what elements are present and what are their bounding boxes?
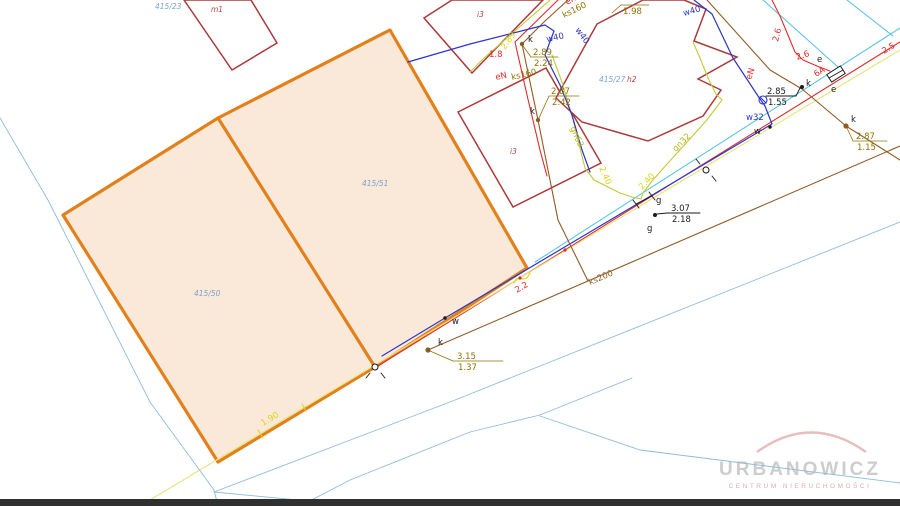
manhole-k4 bbox=[843, 123, 848, 128]
depth-label-240-b: 2.40 bbox=[637, 172, 657, 193]
point-label-k3: k bbox=[438, 338, 443, 348]
building-m1 bbox=[184, 0, 277, 70]
dist-label-2-6-b: 2.6 bbox=[795, 49, 811, 63]
elev-g-bot: 2.18 bbox=[672, 215, 691, 225]
parcel-number-415-27: 415/27 bbox=[599, 75, 626, 84]
manhole-k2 bbox=[536, 118, 540, 122]
point-label-k2: k bbox=[530, 107, 535, 117]
manhole-k1 bbox=[520, 42, 524, 46]
power-label-eN-mid: eN bbox=[494, 71, 508, 83]
manhole-k3 bbox=[425, 347, 430, 352]
water-label-w32: w32 bbox=[746, 113, 764, 123]
elev-k1-top: 2.89 bbox=[533, 48, 552, 58]
dist-label-2-2: 2.2 bbox=[513, 280, 530, 296]
parcel-number-415-23: 415/23 bbox=[155, 2, 182, 11]
cable-marker-2 bbox=[518, 276, 521, 279]
bench1-tick-b bbox=[381, 373, 385, 378]
point-label-g-valve: g bbox=[656, 196, 661, 206]
dist-label-2-5: 2.5 bbox=[880, 41, 897, 57]
power-label-eN-ne: eN bbox=[744, 67, 757, 81]
point-label-k4: k bbox=[851, 115, 856, 125]
elev-k2-bot: 2.42 bbox=[552, 98, 571, 108]
elev-k3-top: 3.15 bbox=[457, 352, 476, 362]
building-label-h2: h2 bbox=[627, 75, 637, 84]
bench2-tick-a bbox=[696, 159, 700, 164]
elev-kblack-top: 2.85 bbox=[767, 87, 786, 97]
point-label-k-black: k bbox=[806, 79, 811, 89]
water-point-1 bbox=[768, 125, 771, 128]
elev-label-198: 1.98 bbox=[623, 7, 642, 17]
telecom-stub-line bbox=[847, 0, 893, 36]
parcel-number-415-50: 415/50 bbox=[194, 289, 221, 298]
elev-k4-top: 2.87 bbox=[856, 132, 875, 142]
point-label-w2: w bbox=[452, 317, 459, 327]
water-point-2 bbox=[443, 316, 446, 319]
benchmark-point-2 bbox=[703, 167, 709, 173]
gas-point-g bbox=[653, 213, 657, 217]
dist-label-1-8: 1.8 bbox=[489, 50, 503, 60]
parcel-number-415-51: 415/51 bbox=[362, 179, 388, 188]
cable-marker-1 bbox=[563, 248, 566, 251]
bottom-bar bbox=[0, 499, 900, 506]
manhole-k-black bbox=[800, 85, 804, 89]
building-label-i3-top: i3 bbox=[477, 10, 484, 19]
elev-k4-bot: 1.15 bbox=[857, 143, 876, 153]
dist-label-2-6-a: 2.6 bbox=[771, 27, 784, 43]
cable-label-6A: 6A bbox=[812, 65, 827, 79]
point-label-g-dot: g bbox=[647, 224, 652, 234]
parcel-highlight bbox=[63, 30, 527, 462]
elev-kblack-bot: 1.55 bbox=[768, 98, 787, 108]
parcel-boundary-curve bbox=[300, 378, 632, 506]
point-label-k1: k bbox=[528, 35, 533, 45]
sewer-label-ks200: ks200 bbox=[587, 269, 614, 288]
gas-label-gn32: gn32 bbox=[671, 132, 693, 154]
map-viewport: URBANOWICZ CENTRUM NIERUCHOMOŚCI 415/23m… bbox=[0, 0, 900, 506]
benchmark-point-1 bbox=[372, 364, 378, 370]
point-label-e1: e bbox=[817, 55, 822, 65]
elev-k3-bot: 1.37 bbox=[458, 363, 477, 373]
building-h2 bbox=[556, 0, 737, 141]
point-label-e2: e bbox=[831, 85, 836, 95]
cadastral-map: 415/23m1i3i3h2415/27415/51415/50eNks160e… bbox=[0, 0, 900, 506]
elev-k1-bot: 2.24 bbox=[534, 59, 553, 69]
depth-label-240-a: 2.40 bbox=[596, 165, 613, 186]
parcel-boundary-se bbox=[540, 416, 900, 483]
bench2-tick-b bbox=[712, 176, 716, 181]
elev-g-top: 3.07 bbox=[671, 204, 690, 214]
building-label-m1: m1 bbox=[211, 5, 223, 14]
building-label-i3-mid: i3 bbox=[510, 147, 517, 156]
point-label-w1: w bbox=[754, 127, 761, 137]
elev-k2-top: 2.87 bbox=[551, 87, 570, 97]
water-label-w40-a: w40 bbox=[546, 31, 565, 44]
